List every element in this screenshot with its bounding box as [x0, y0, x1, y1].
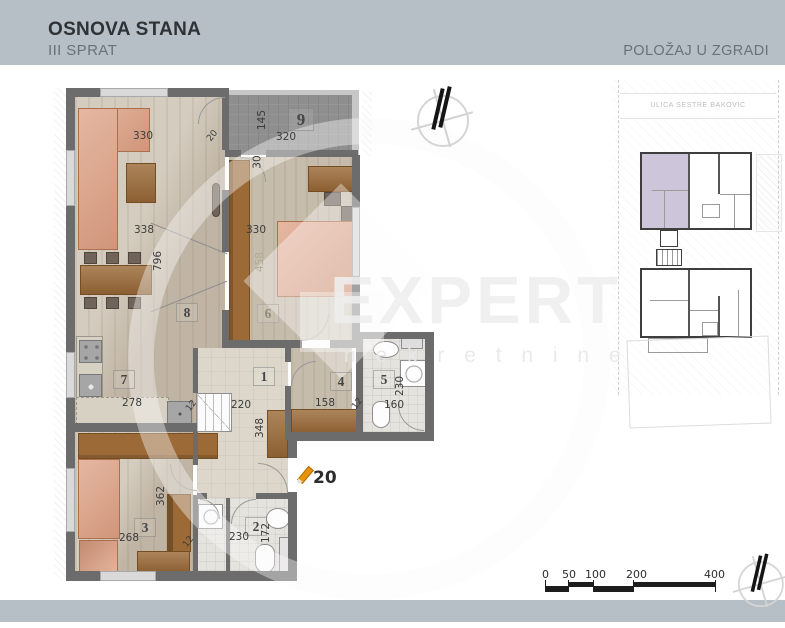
stairs-block [656, 249, 682, 266]
dining-chair [84, 297, 97, 309]
wall [356, 332, 363, 438]
partition [650, 300, 688, 301]
watermark-brand: EXPERT [330, 262, 622, 339]
dim-label: 145 [256, 110, 268, 130]
terrace-glass-right [352, 90, 359, 156]
parcel-dashed-line [778, 80, 779, 395]
desk-bedroom6 [308, 166, 357, 192]
partition [702, 204, 720, 218]
pencil-icon [297, 466, 314, 484]
dim-label: 796 [152, 251, 164, 271]
street-band: ULICA SESTRE BAKOVIĆ [620, 93, 776, 119]
building-2 [640, 268, 752, 338]
dining-table [80, 265, 152, 295]
room-number-1: 1 [253, 367, 275, 386]
dining-chair [106, 252, 119, 264]
site-plan: ULICA SESTRE BAKOVIĆ [612, 80, 784, 395]
dim-label: 268 [119, 532, 139, 544]
partition [664, 190, 665, 228]
dim-label: 320 [276, 131, 296, 143]
partition [718, 296, 720, 336]
kitchen-sink [79, 374, 102, 397]
building-1 [640, 152, 752, 230]
wall [288, 492, 297, 580]
dining-chair [106, 297, 119, 309]
wall [197, 493, 207, 499]
dim-label: 230 [229, 531, 249, 543]
partition [738, 290, 739, 336]
dim-label: 362 [155, 486, 167, 506]
partition [690, 310, 718, 311]
washbasin-bath5 [373, 341, 399, 358]
dining-chair [128, 252, 141, 264]
wall [225, 150, 241, 157]
dim-label: 30 [252, 155, 264, 168]
scale-label: 200 [626, 568, 647, 581]
wardrobe-room4 [291, 409, 359, 434]
parcel-outline [627, 336, 772, 429]
partition [688, 270, 690, 336]
stair-shaft [660, 230, 678, 247]
sofa-left [78, 108, 118, 250]
dim-label: 278 [122, 397, 142, 409]
wall [193, 432, 198, 465]
scale-segment [545, 587, 568, 592]
scale-label: 50 [562, 568, 576, 581]
room-number-4: 4 [330, 372, 352, 391]
room-number-5: 5 [373, 370, 395, 389]
bed-bedroom6 [277, 221, 357, 297]
dining-chair [84, 252, 97, 264]
building-stairs [196, 393, 232, 432]
floor-plan-page: OSNOVA STANA III SPRAT POLOŽAJ U ZGRADI [0, 0, 785, 628]
dim-label: 172 [260, 523, 272, 543]
scale-segment [633, 582, 716, 587]
dining-chair [128, 297, 141, 309]
north-compass-bottom [732, 550, 785, 606]
partition [652, 190, 688, 191]
window [66, 468, 75, 532]
coffee-table [126, 163, 156, 203]
dim-label: 330 [133, 130, 153, 142]
dim-label: 330 [246, 224, 266, 236]
corridor-wardrobe [229, 160, 250, 342]
chair-bedroom6 [324, 192, 341, 206]
scale-segment [593, 587, 633, 592]
window [66, 352, 75, 398]
wall [288, 440, 297, 458]
exterior-hatch [54, 88, 66, 580]
desk-room3-bottom [137, 551, 190, 573]
wall [352, 155, 360, 207]
tv-unit [212, 183, 220, 217]
toilet-bath2 [255, 544, 275, 573]
room-number-7: 7 [113, 370, 135, 389]
north-compass-top [410, 82, 474, 146]
position-in-building-label: POLOŽAJ U ZGRADI [623, 43, 769, 59]
wall [425, 332, 434, 441]
partition [702, 322, 718, 336]
parcel-dashed-line [618, 80, 619, 395]
room-number-8: 8 [176, 303, 198, 322]
partition [734, 194, 735, 228]
wall [356, 332, 434, 339]
window [100, 88, 168, 97]
room-number-6: 6 [257, 304, 279, 323]
wall [266, 150, 358, 157]
wall [356, 432, 434, 441]
scale-label: 100 [585, 568, 606, 581]
partition [718, 154, 720, 194]
neighbor-structure [756, 154, 782, 232]
window [100, 571, 156, 581]
wall [222, 190, 229, 252]
wall [66, 423, 197, 432]
seat-room3 [79, 540, 118, 573]
wall [222, 340, 302, 348]
exterior-hatch-right [362, 92, 372, 156]
wall [256, 493, 290, 499]
wall [285, 348, 291, 362]
window [66, 150, 75, 206]
bed-room3 [78, 459, 120, 539]
footer-band [0, 600, 785, 622]
dim-label: 220 [231, 399, 251, 411]
dim-label: 338 [134, 224, 154, 236]
wall [352, 277, 360, 340]
wall [193, 495, 198, 580]
stove [79, 340, 102, 363]
window [352, 207, 360, 277]
scale-segment [568, 582, 593, 587]
dim-label: 458 [254, 252, 266, 272]
apartment-number: 20 [313, 468, 337, 488]
partition [720, 194, 750, 195]
wall [193, 348, 198, 393]
terrace-glass-top [228, 90, 357, 95]
dim-label: 158 [315, 397, 335, 409]
wall [285, 386, 291, 440]
dim-label: 348 [254, 418, 266, 438]
wall [288, 432, 362, 441]
highlighted-apartment [642, 154, 688, 228]
partition [688, 154, 690, 228]
dim-label: 230 [394, 376, 406, 396]
dim-label: 160 [384, 399, 404, 411]
scale-bar: 0 50 100 200 400 [535, 560, 735, 598]
room-number-9: 9 [288, 108, 314, 131]
floor-plan: EXPERT n e k r e t n i n e 9 8 6 7 1 4 5… [0, 0, 470, 628]
